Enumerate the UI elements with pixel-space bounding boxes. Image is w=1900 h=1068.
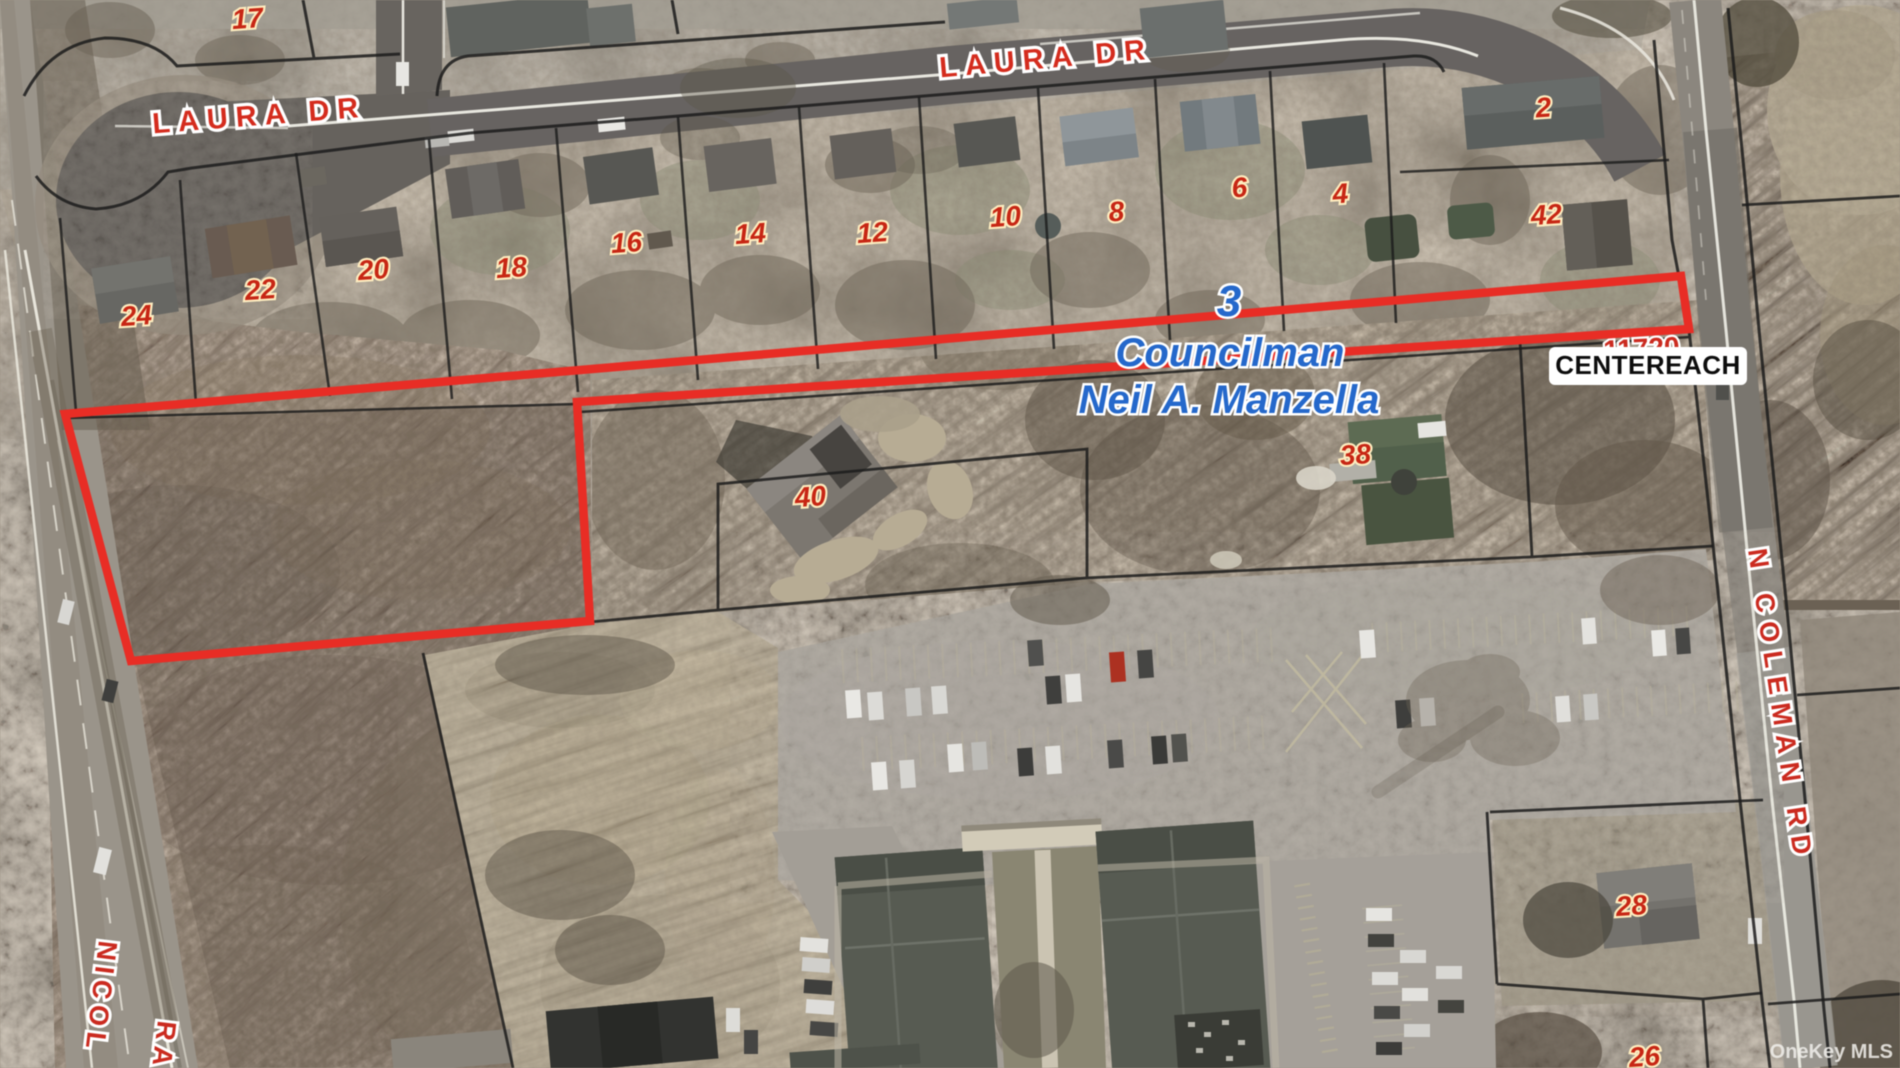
svg-text:3: 3 bbox=[1217, 277, 1241, 326]
svg-text:RA: RA bbox=[146, 1019, 182, 1068]
svg-text:42: 42 bbox=[1529, 198, 1564, 231]
svg-text:24: 24 bbox=[119, 299, 154, 332]
svg-text:14: 14 bbox=[734, 217, 768, 250]
svg-text:26: 26 bbox=[1627, 1040, 1662, 1068]
svg-text:Neil A. Manzella: Neil A. Manzella bbox=[1079, 378, 1380, 422]
svg-text:22: 22 bbox=[243, 273, 278, 306]
svg-text:12: 12 bbox=[856, 216, 890, 249]
svg-text:Councilman: Councilman bbox=[1116, 331, 1345, 375]
svg-text:10: 10 bbox=[989, 200, 1023, 233]
svg-text:OneKey MLS: OneKey MLS bbox=[1770, 1041, 1893, 1063]
svg-text:20: 20 bbox=[356, 253, 391, 286]
svg-text:2: 2 bbox=[1533, 91, 1552, 123]
svg-text:28: 28 bbox=[1614, 889, 1649, 922]
svg-text:18: 18 bbox=[495, 251, 529, 284]
svg-text:40: 40 bbox=[793, 480, 828, 513]
svg-text:4: 4 bbox=[1330, 177, 1349, 209]
svg-text:8: 8 bbox=[1107, 195, 1125, 227]
svg-text:CENTEREACH: CENTEREACH bbox=[1555, 350, 1741, 380]
svg-text:6: 6 bbox=[1230, 171, 1248, 203]
svg-text:17: 17 bbox=[231, 2, 266, 35]
svg-text:38: 38 bbox=[1339, 438, 1373, 471]
svg-text:16: 16 bbox=[610, 226, 644, 259]
